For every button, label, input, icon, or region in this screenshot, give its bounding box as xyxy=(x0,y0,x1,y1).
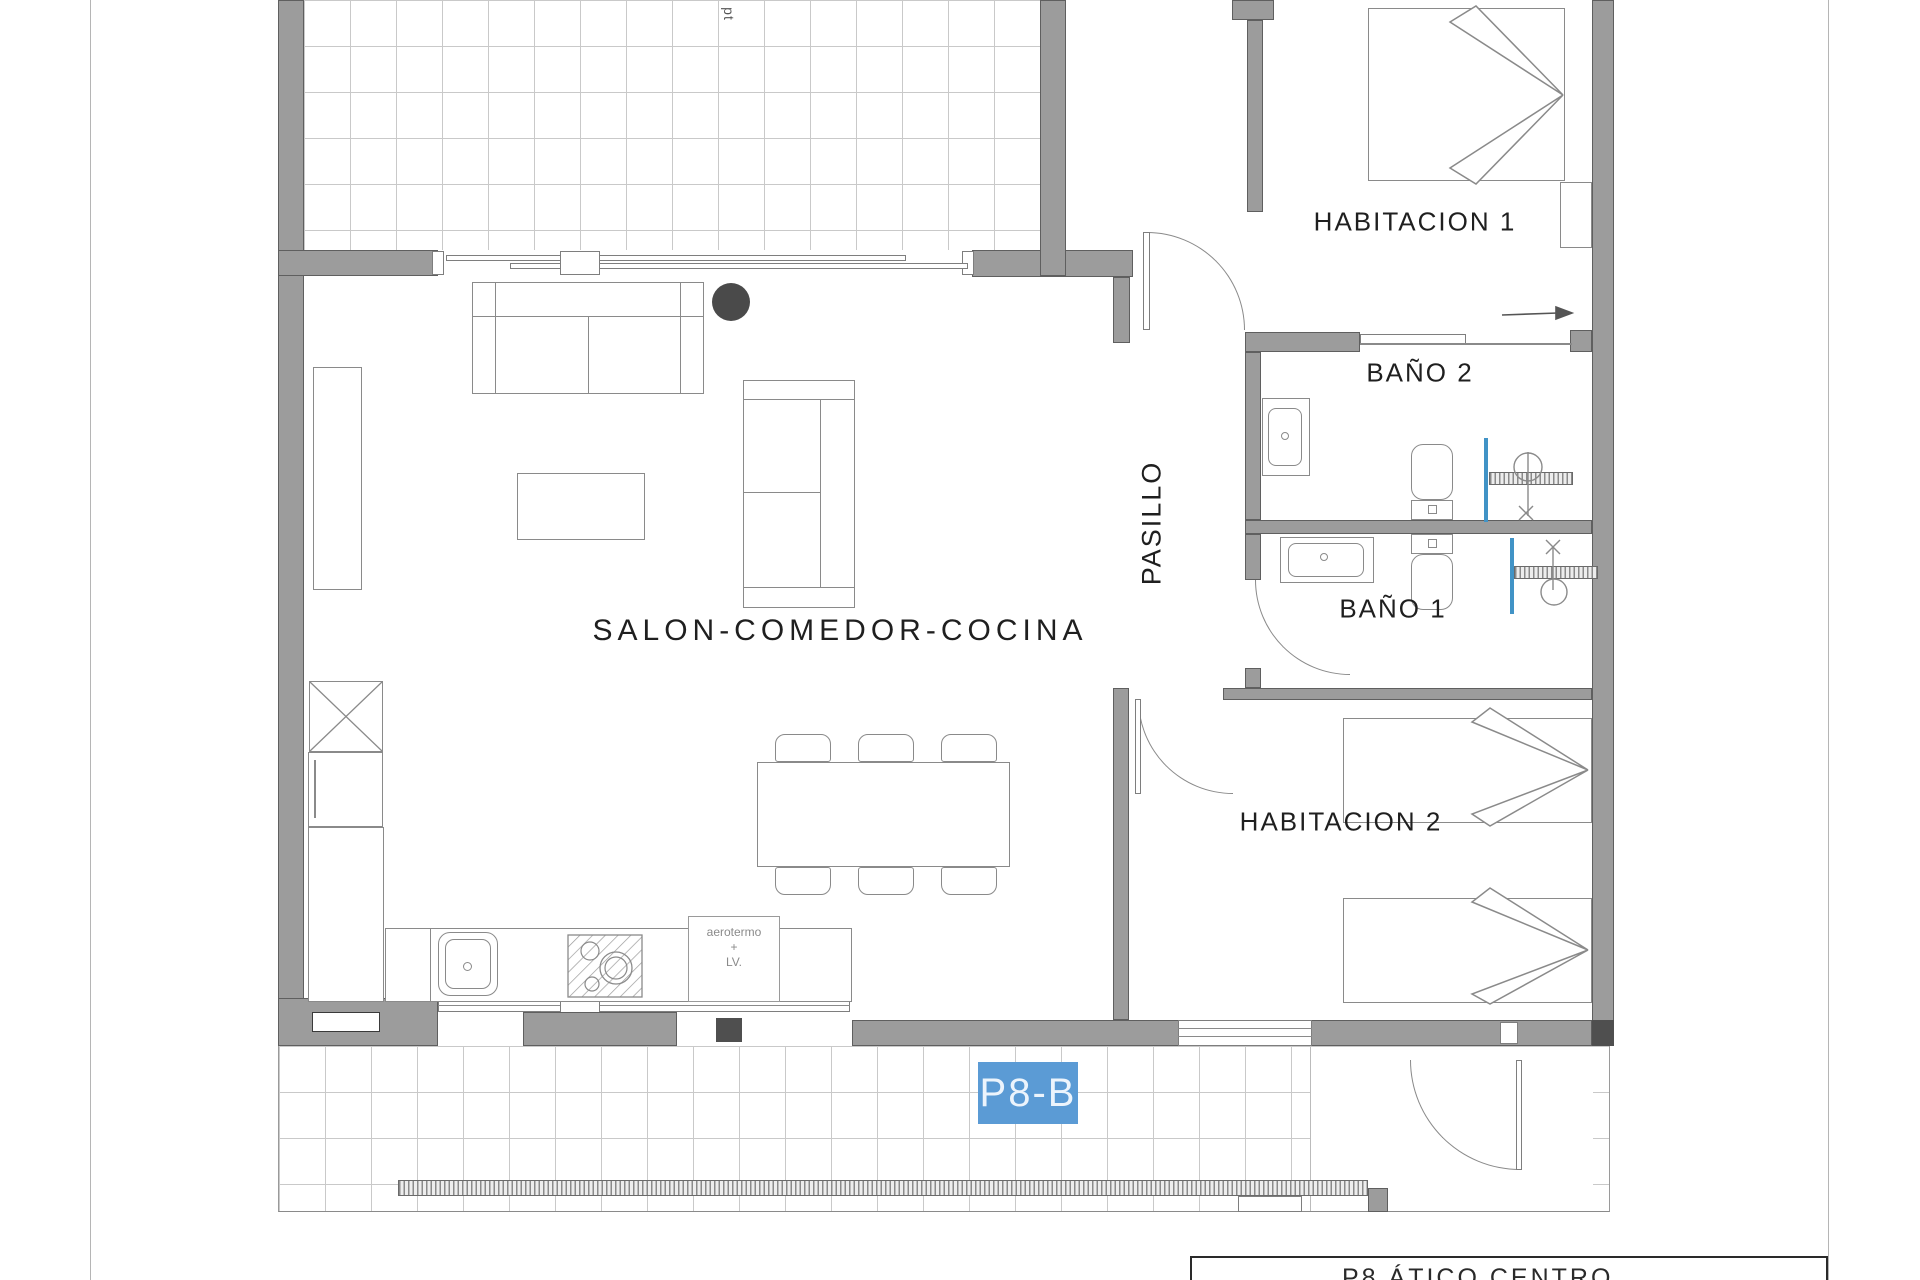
wall-living-bedroom2 xyxy=(1113,688,1129,1020)
nightstand xyxy=(1560,182,1592,248)
wall-bedroom1-partition-cap xyxy=(1232,0,1274,20)
bath1-sink-drain xyxy=(1320,553,1328,561)
coffee-table xyxy=(517,473,645,540)
bedroom2-door-arc xyxy=(1138,699,1233,794)
terrace-sliding-panel-1 xyxy=(446,255,906,261)
bed-single-2 xyxy=(1343,898,1592,1003)
utility-box: aerotermo + LV. xyxy=(688,916,780,1002)
room-label-bedroom2: HABITACION 2 xyxy=(1240,807,1443,838)
bath2-shower-glass xyxy=(1484,438,1488,522)
dining-chair xyxy=(941,867,997,895)
wall-dark-pillar xyxy=(716,1018,742,1042)
bath2-toilet-bowl xyxy=(1411,444,1453,500)
sofa-side-seat-divider xyxy=(743,492,821,493)
room-label-bedroom1: HABITACION 1 xyxy=(1314,207,1517,238)
tv-cabinet xyxy=(313,367,362,590)
sofa-main-seat-divider xyxy=(588,316,589,394)
dining-chair xyxy=(941,734,997,762)
unit-badge: P8-B xyxy=(978,1062,1078,1124)
wall-hall-stub xyxy=(1113,277,1130,343)
kitchen-sink-drain xyxy=(463,962,472,971)
sofa-side-backline xyxy=(820,399,821,587)
utility-line3: LV. xyxy=(689,955,779,970)
wall-bedroom1-partition xyxy=(1247,20,1263,212)
window-bottom-left xyxy=(312,1012,380,1032)
wall-bath1-left-upper xyxy=(1245,534,1261,580)
terrace-door-jamb-mid xyxy=(560,251,600,275)
bath1-door-arc xyxy=(1255,580,1350,675)
wall-left-exterior xyxy=(278,0,304,1046)
terrace-railing xyxy=(398,1180,1368,1196)
bath2-sink-drain xyxy=(1281,432,1289,440)
bath2-shower-rail xyxy=(1489,472,1573,485)
entrance-jamb xyxy=(1500,1022,1518,1044)
bath2-sliding-door-track xyxy=(1360,343,1572,345)
wall-bath2-left xyxy=(1245,352,1261,520)
window-bedroom2 xyxy=(1178,1020,1312,1046)
terrace-note: pt xyxy=(721,7,737,21)
floor-plan-canvas: aerotermo + LV. P8-B HABITACION 1 BAÑO 2… xyxy=(0,0,1920,1280)
sofa-main-armrest-left xyxy=(495,282,496,394)
room-label-bath2: BAÑO 2 xyxy=(1366,358,1473,389)
terrace-step xyxy=(1238,1196,1302,1212)
wall-bath1-left-lower xyxy=(1245,668,1261,688)
wall-bedroom1-bath2 xyxy=(1245,332,1360,352)
window-bedroom2-line2 xyxy=(1178,1036,1312,1037)
sofa-side-armrest-bottom xyxy=(743,587,855,588)
kitchen-cabinet-handle xyxy=(314,760,316,818)
page-frame-right xyxy=(1828,0,1829,1280)
wall-porch-block xyxy=(523,1012,677,1046)
title-block: P8 ÁTICO CENTRO xyxy=(1190,1256,1828,1280)
sliding-arrow-icon xyxy=(1502,307,1572,319)
utility-line2: + xyxy=(689,940,779,955)
dining-table xyxy=(757,762,1010,867)
wall-corner-dark xyxy=(1592,1020,1614,1046)
bath2-toilet-button xyxy=(1428,505,1437,514)
wall-bath2-jamb xyxy=(1570,330,1592,352)
railing-post xyxy=(1368,1188,1388,1212)
kitchen-cabinet xyxy=(308,752,383,827)
sofa-main-armrest-right xyxy=(680,282,681,394)
room-label-living: SALON-COMEDOR-COCINA xyxy=(592,614,1087,648)
wall-bath-divider xyxy=(1245,520,1592,534)
wall-terrace-right xyxy=(1040,0,1066,276)
window-bedroom2-line1 xyxy=(1178,1028,1312,1029)
top-terrace-tiles xyxy=(304,0,1040,250)
entrance-door-leaf xyxy=(1516,1060,1522,1170)
room-label-bath1: BAÑO 1 xyxy=(1339,594,1446,625)
bedroom1-door-arc xyxy=(1147,232,1245,330)
dining-chair xyxy=(858,867,914,895)
sofa-side-armrest-top xyxy=(743,399,855,400)
bedroom2-door-leaf xyxy=(1135,699,1141,794)
bath2-shower-head-icon xyxy=(1514,452,1542,520)
page-frame-left xyxy=(90,0,91,1280)
dining-chair xyxy=(775,867,831,895)
dining-chair xyxy=(858,734,914,762)
sofa-side xyxy=(743,380,855,608)
bath1-shower-rail xyxy=(1514,566,1598,579)
wall-right-exterior xyxy=(1592,0,1614,1046)
unit-badge-label: P8-B xyxy=(980,1071,1077,1116)
wall-terrace-bottom-left xyxy=(278,250,438,276)
bed-double xyxy=(1368,8,1565,181)
column-icon xyxy=(712,283,750,321)
bath1-toilet-button xyxy=(1428,539,1437,548)
wall-bath1-bottom xyxy=(1223,688,1592,700)
kitchen-column xyxy=(308,827,384,1002)
kitchen-tall-unit-x xyxy=(309,681,383,752)
utility-line1: aerotermo xyxy=(689,925,779,940)
room-label-hallway: PASILLO xyxy=(1137,461,1168,586)
title-block-text: P8 ÁTICO CENTRO xyxy=(1342,1264,1613,1280)
terrace-door-jamb-left xyxy=(432,251,444,275)
dining-chair xyxy=(775,734,831,762)
kitchen-window-line xyxy=(438,1005,850,1006)
kitchen-counter-div1 xyxy=(430,928,431,1002)
bedroom1-door-leaf xyxy=(1143,232,1150,330)
